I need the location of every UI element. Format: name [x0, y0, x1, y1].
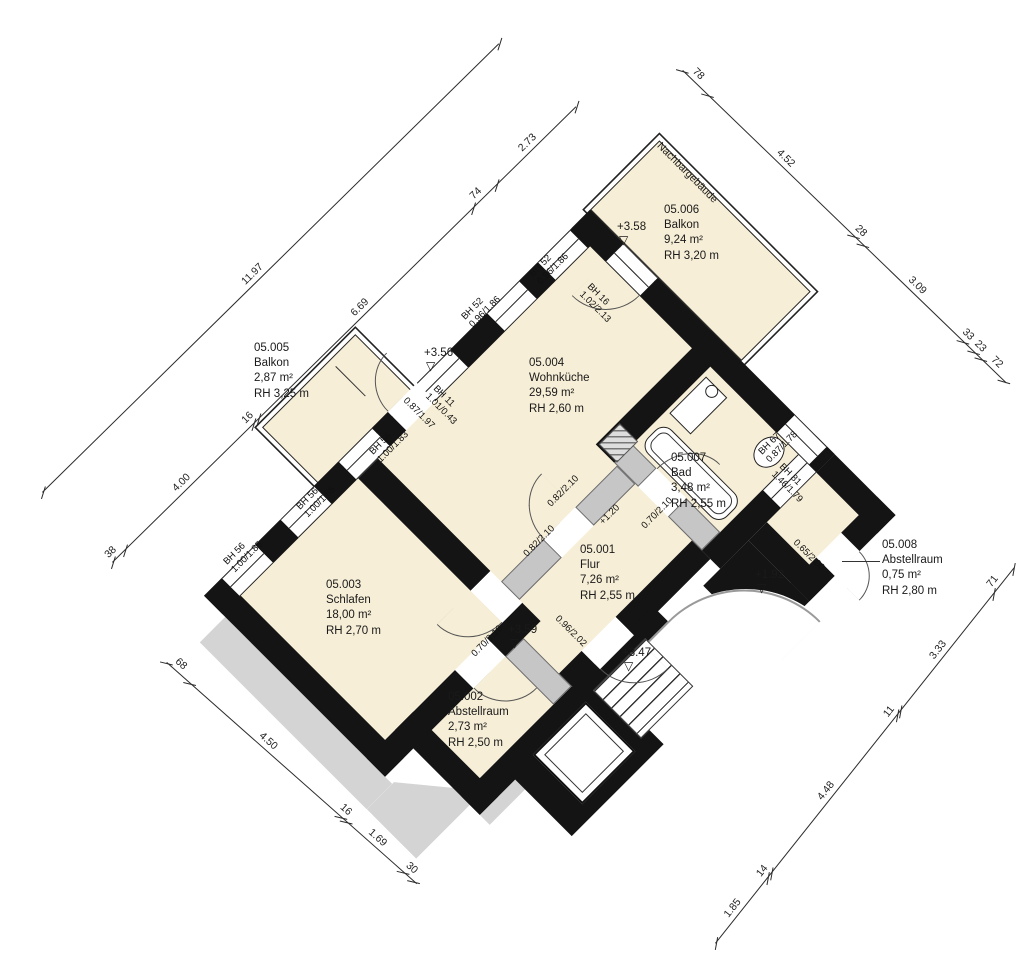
floor-plan-canvas: Nachbargebäude 05.006Balkon 9,24 m²RH 3,… [0, 0, 1024, 967]
dimension-tick [975, 357, 988, 362]
dimension-value: 33 [960, 326, 977, 343]
room-label-05008: 05.008Abstellraum 0,75 m²RH 2,80 m [882, 538, 943, 599]
room-label-05002: 05.002Abstellraum 2,73 m²RH 2,50 m [448, 690, 509, 751]
dimension-tick [899, 705, 902, 718]
level-triangle-icon: ▽ [757, 582, 784, 594]
level-marker: +3.47▽ [622, 648, 651, 672]
dimension-value: 4.48 [815, 779, 837, 802]
room-label-05001: 05.001Flur 7,26 m²RH 2,55 m [580, 543, 635, 604]
dimension-tick [41, 486, 46, 499]
dimension-tick [160, 661, 173, 665]
level-marker: +3.59▽ [508, 625, 537, 649]
dimension-value: 68 [173, 655, 190, 672]
room-label-05006: 05.006Balkon 9,24 m²RH 3,20 m [664, 203, 719, 264]
dimension-value: 16 [338, 801, 355, 818]
leader-line-05008 [842, 561, 880, 562]
dimension-tick [701, 93, 714, 98]
dimension-value: 4.52 [774, 147, 797, 170]
dimension-tick [497, 37, 502, 50]
level-marker: +1.92▽ [755, 570, 784, 594]
floor-plan-rotated-layer [119, 44, 1024, 967]
dimension-value: 38 [102, 544, 119, 561]
level-triangle-icon: ▽ [619, 234, 646, 246]
dimension-tick [340, 820, 353, 824]
dimension-value: 72 [989, 354, 1006, 371]
dimension-tick [183, 682, 196, 686]
dimension-tick [407, 880, 420, 884]
room-label-05003: 05.003Schlafen 18,00 m²RH 2,70 m [326, 578, 381, 639]
level-triangle-icon: ▽ [624, 660, 651, 672]
dimension-value: 4.50 [257, 730, 280, 753]
dimension-value: 3.09 [906, 274, 929, 297]
level-triangle-icon: ▽ [510, 637, 537, 649]
level-marker: +3.56▽ [424, 348, 453, 372]
room-label-05005: 05.005Balkon 2,87 m²RH 3,25 m [254, 341, 309, 402]
room-label-05004: 05.004Wohnküche 29,59 m²RH 2,60 m [529, 356, 590, 417]
dimension-value: 1.69 [366, 826, 389, 849]
dimension-value: 78 [690, 65, 707, 82]
dimension-value: 11.97 [239, 261, 266, 287]
dimension-tick [998, 379, 1011, 384]
room-label-05007: 05.007Bad 3,48 m²RH 2,55 m [671, 451, 726, 512]
level-triangle-icon: ▽ [426, 360, 453, 372]
dimension-tick [676, 69, 689, 74]
dimension-value: 1.85 [721, 896, 743, 919]
dimension-tick [857, 243, 870, 248]
level-marker: +3.58▽ [617, 222, 646, 246]
dimension-tick [714, 937, 717, 950]
